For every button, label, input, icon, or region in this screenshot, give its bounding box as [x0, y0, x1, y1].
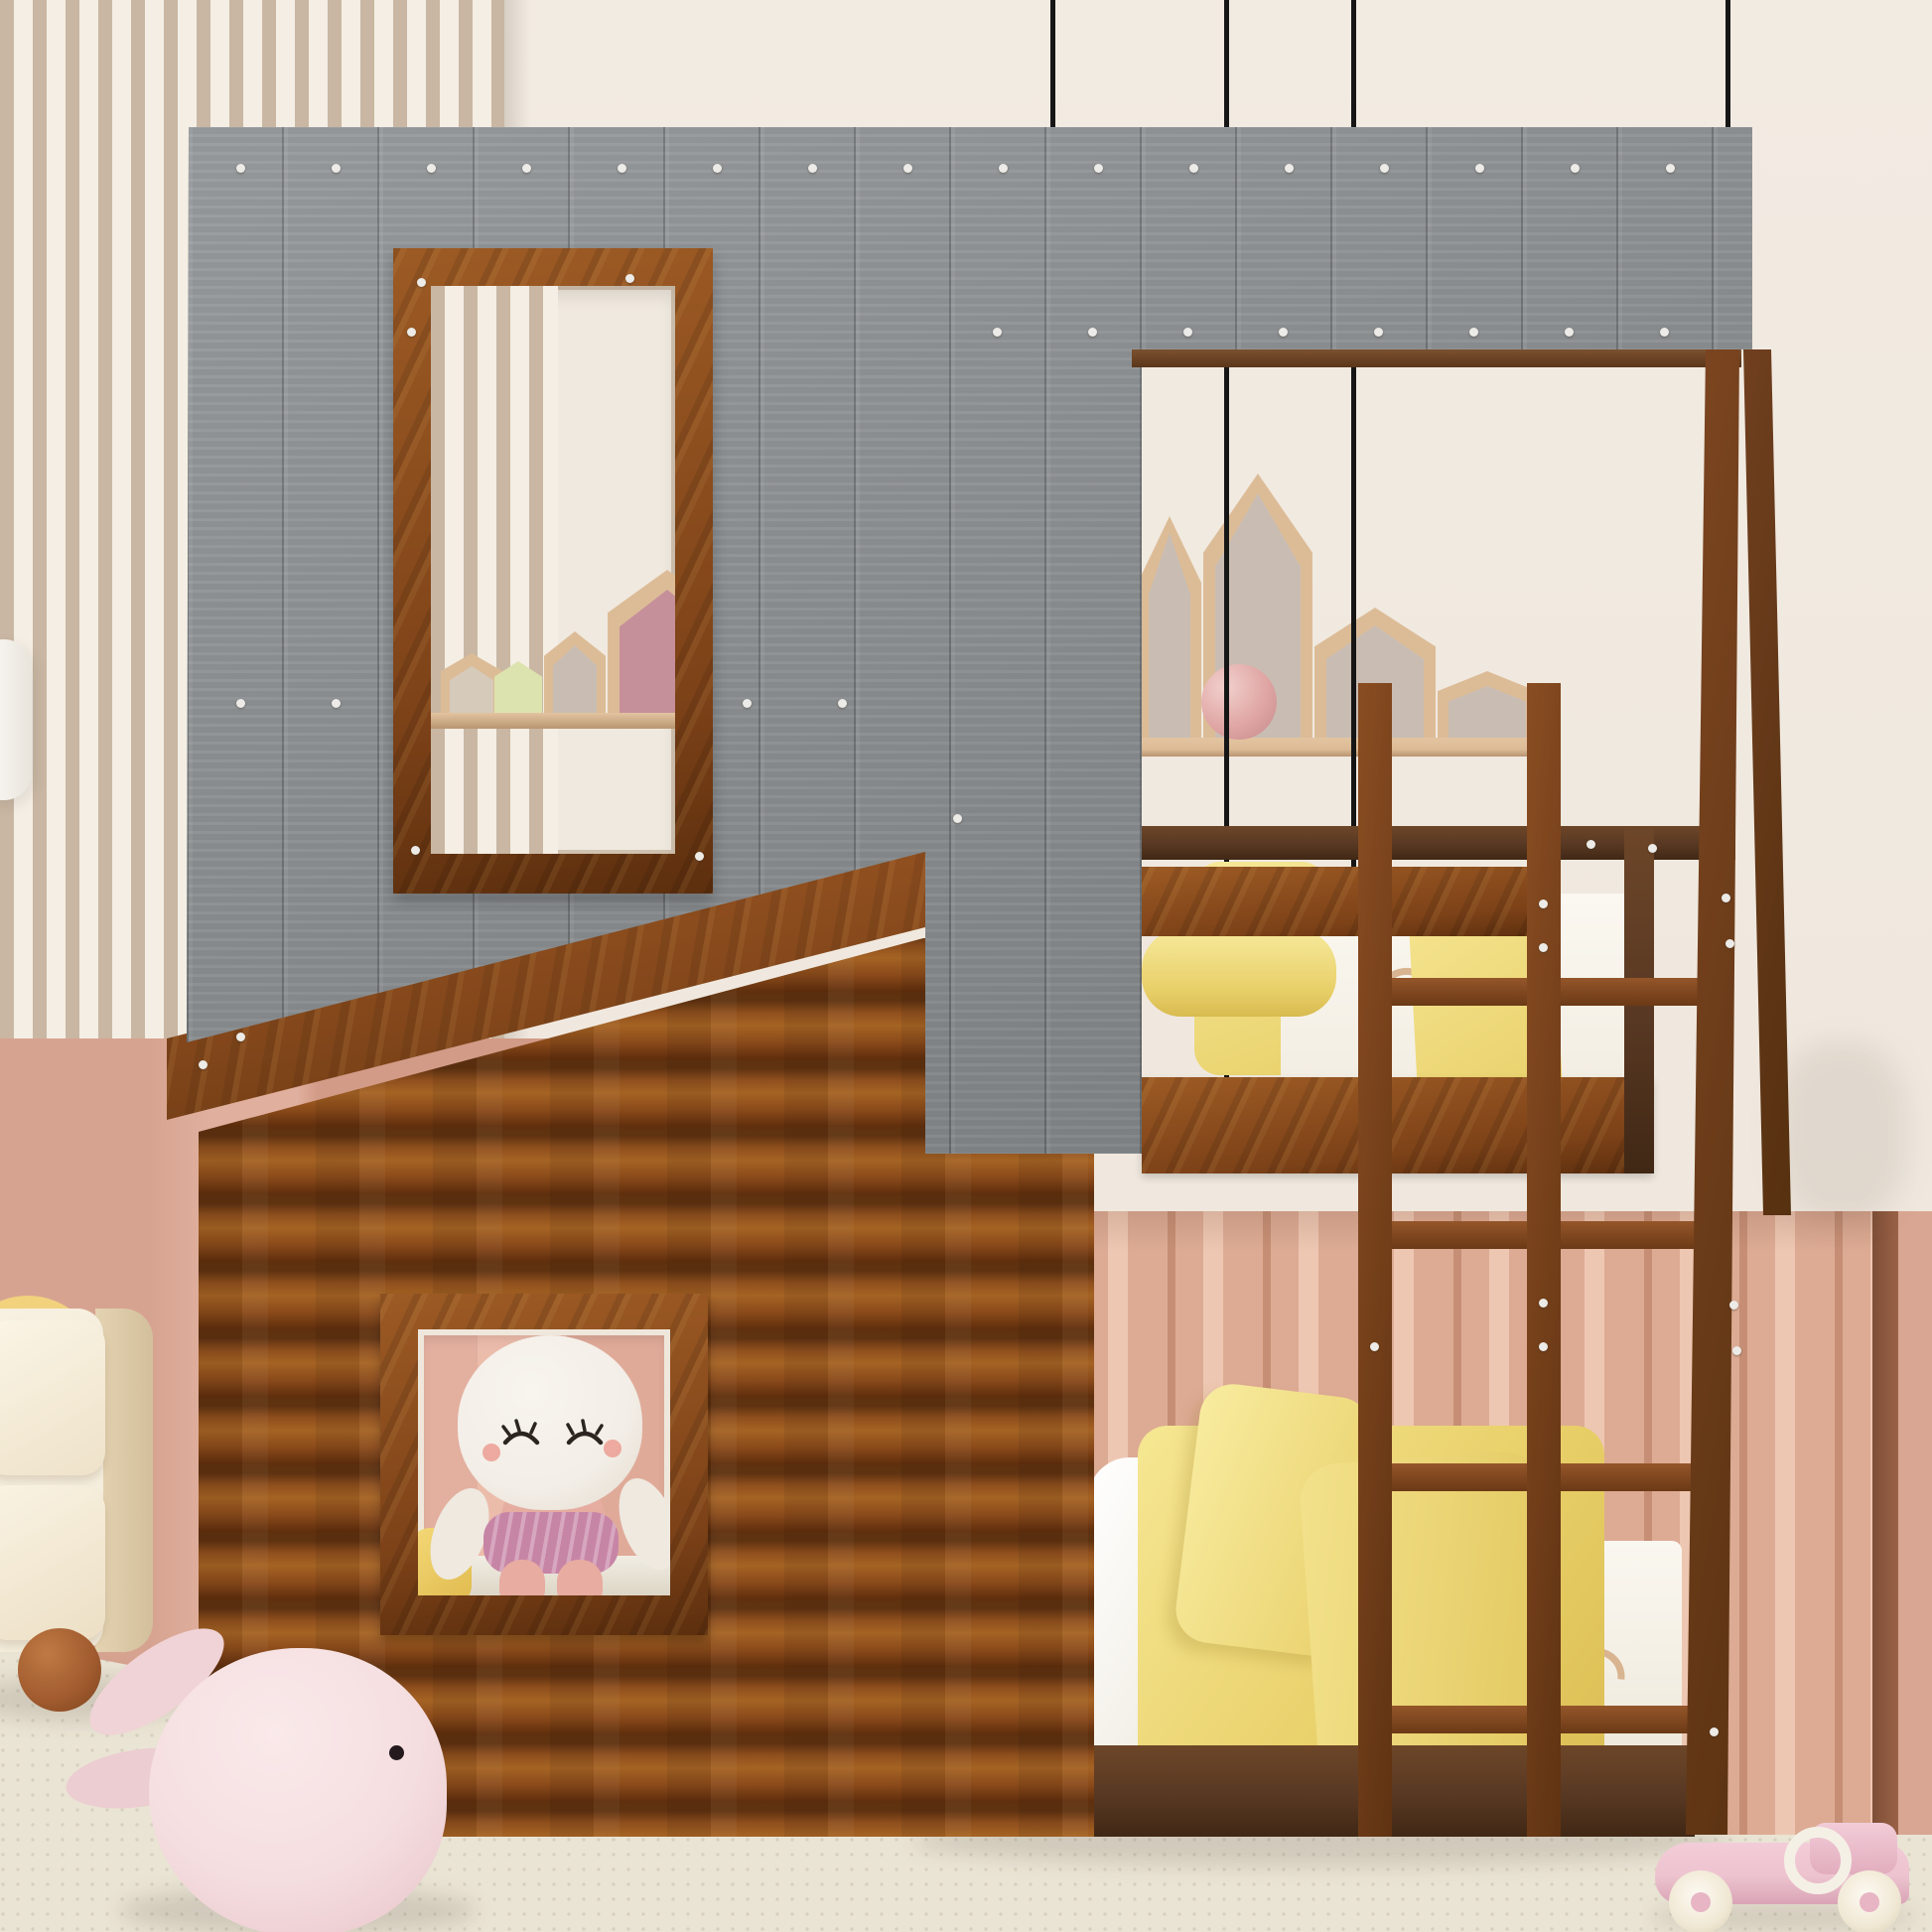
shelf-board-right [1138, 738, 1559, 757]
roof-screw [1380, 164, 1389, 173]
hanging-cable-1 [1050, 0, 1055, 129]
roof-screw [1374, 328, 1383, 337]
lower-window-interior [418, 1329, 670, 1595]
aframe-screw-2 [1725, 939, 1734, 948]
roof-screw [838, 699, 847, 708]
roof-screw [808, 164, 817, 173]
ladder-screw-3 [1539, 1299, 1548, 1308]
roof-window-screw-2 [625, 274, 634, 283]
roof-screw [1189, 164, 1198, 173]
roof-window-screw-3 [407, 328, 416, 337]
car-wheel-rear-hub [1860, 1892, 1879, 1912]
upper-bunk-yellow-roll [1142, 929, 1336, 1017]
roof-screw [236, 164, 245, 173]
roof-screw [999, 164, 1008, 173]
roof-screw [427, 164, 436, 173]
nightstand-drawer-top [0, 1320, 105, 1475]
kids-bedroom-scene [0, 0, 1932, 1932]
roof-screw [1475, 164, 1484, 173]
roof-screw [618, 164, 626, 173]
roof-screw [1183, 328, 1192, 337]
nightstand-drawer-bottom [0, 1485, 105, 1640]
roof-window-screw-5 [695, 852, 704, 861]
rail-screw-1 [1587, 840, 1595, 849]
roof-screw [1279, 328, 1288, 337]
hanging-cable-3 [1351, 0, 1356, 129]
fascia-screw-1 [199, 1060, 207, 1069]
right-wall-panel [1898, 1211, 1932, 1839]
ladder-rail-left [1358, 683, 1392, 1837]
toy-car [1643, 1819, 1932, 1932]
roof-screw [1088, 328, 1097, 337]
aframe-screw-4 [1732, 1346, 1741, 1355]
whale-body [149, 1648, 447, 1932]
roof-screw [903, 164, 912, 173]
hanging-cable-4 [1725, 0, 1730, 129]
aframe-screw-1 [1722, 894, 1730, 902]
roof-screw [1666, 164, 1675, 173]
roof-screw [522, 164, 531, 173]
ladder-screw-5 [1370, 1342, 1379, 1351]
roof-screw [236, 699, 245, 708]
roof-screw [1094, 164, 1103, 173]
roof-screw [713, 164, 722, 173]
top-beam [1132, 349, 1741, 367]
roof-screw [1285, 164, 1294, 173]
upper-bunk-guard-rail [1142, 867, 1561, 936]
doll-leg-right [557, 1560, 603, 1595]
ladder-screw-2 [1539, 943, 1548, 952]
pendant-lamp [0, 639, 32, 800]
roof-window-interior [431, 286, 675, 854]
roof-screw [743, 699, 752, 708]
window-view-shelf-board [431, 713, 675, 729]
roof-screw [1571, 164, 1580, 173]
roof-screw [332, 164, 341, 173]
doll-skirt [483, 1512, 619, 1574]
roof-screw [953, 814, 962, 823]
hanging-cable-2 [1224, 0, 1229, 129]
roof-screw [1469, 328, 1478, 337]
whale-eye [389, 1745, 404, 1760]
roof-window-screw-4 [411, 846, 420, 855]
rail-screw-2 [1648, 844, 1657, 853]
ladder-screw-1 [1539, 899, 1548, 908]
roof-screw [1660, 328, 1669, 337]
aframe-screw-3 [1729, 1301, 1738, 1310]
upper-bunk-side-rail [1142, 1077, 1653, 1173]
nightstand-ball-foot [18, 1628, 101, 1712]
shelf-pink-ball [1201, 664, 1277, 740]
roof-window-screw-1 [417, 278, 426, 287]
aframe-screw-5 [1710, 1727, 1719, 1736]
ladder-rail-right [1527, 683, 1561, 1837]
ladder-screw-4 [1539, 1342, 1548, 1351]
car-wheel-front-hub [1691, 1892, 1711, 1912]
roof-screw [332, 699, 341, 708]
right-wall-divider [1872, 1211, 1898, 1839]
doll-leg-left [499, 1560, 545, 1595]
roof-screw [236, 1033, 245, 1041]
roof-screw [993, 328, 1002, 337]
roof-screw [1565, 328, 1574, 337]
window-view-slats [431, 286, 558, 854]
car-steering-ring [1784, 1827, 1852, 1894]
wall-shadow-right-of-bed [1777, 1042, 1906, 1221]
doll-face [458, 1335, 642, 1510]
